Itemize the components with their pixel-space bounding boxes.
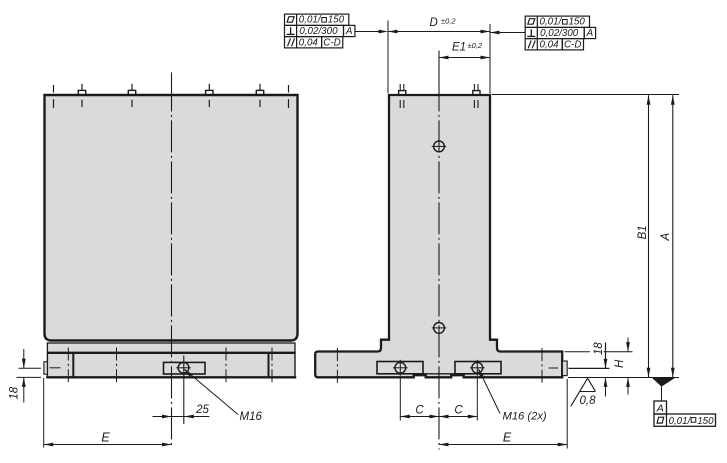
svg-text:M16 (2x): M16 (2x)	[503, 411, 547, 423]
svg-text:M16: M16	[240, 411, 263, 423]
svg-text:150: 150	[697, 416, 714, 427]
svg-text:18: 18	[593, 342, 605, 355]
svg-text:0,8: 0,8	[580, 395, 597, 407]
svg-text:0,01/: 0,01/	[669, 416, 692, 427]
svg-text:H: H	[614, 359, 626, 368]
svg-text:0,01/: 0,01/	[299, 15, 322, 26]
svg-text:0,02/300: 0,02/300	[299, 26, 338, 37]
svg-text:C-D: C-D	[323, 38, 340, 49]
svg-text:25: 25	[195, 404, 209, 416]
svg-text:E: E	[101, 431, 110, 445]
svg-text:D: D	[430, 17, 438, 29]
svg-text:A: A	[345, 26, 353, 37]
svg-text:C-D: C-D	[564, 40, 581, 51]
svg-text:C: C	[415, 405, 424, 417]
svg-text:18: 18	[9, 386, 21, 399]
svg-text:E: E	[503, 431, 512, 445]
svg-text:150: 150	[328, 15, 345, 26]
svg-text:150: 150	[569, 17, 586, 28]
svg-text:B1: B1	[637, 225, 649, 239]
svg-text:A: A	[586, 28, 594, 39]
svg-text:C: C	[454, 405, 463, 417]
svg-text:±0,2: ±0,2	[468, 41, 483, 50]
svg-text:A: A	[660, 233, 672, 242]
svg-text:0,04: 0,04	[540, 40, 560, 51]
svg-text:E1: E1	[452, 42, 466, 54]
svg-text:0,04: 0,04	[299, 38, 319, 49]
svg-text:A: A	[656, 403, 664, 415]
svg-text:±0,2: ±0,2	[441, 17, 456, 26]
svg-text:0,01/: 0,01/	[540, 17, 563, 28]
svg-text:0,02/300: 0,02/300	[540, 28, 579, 39]
